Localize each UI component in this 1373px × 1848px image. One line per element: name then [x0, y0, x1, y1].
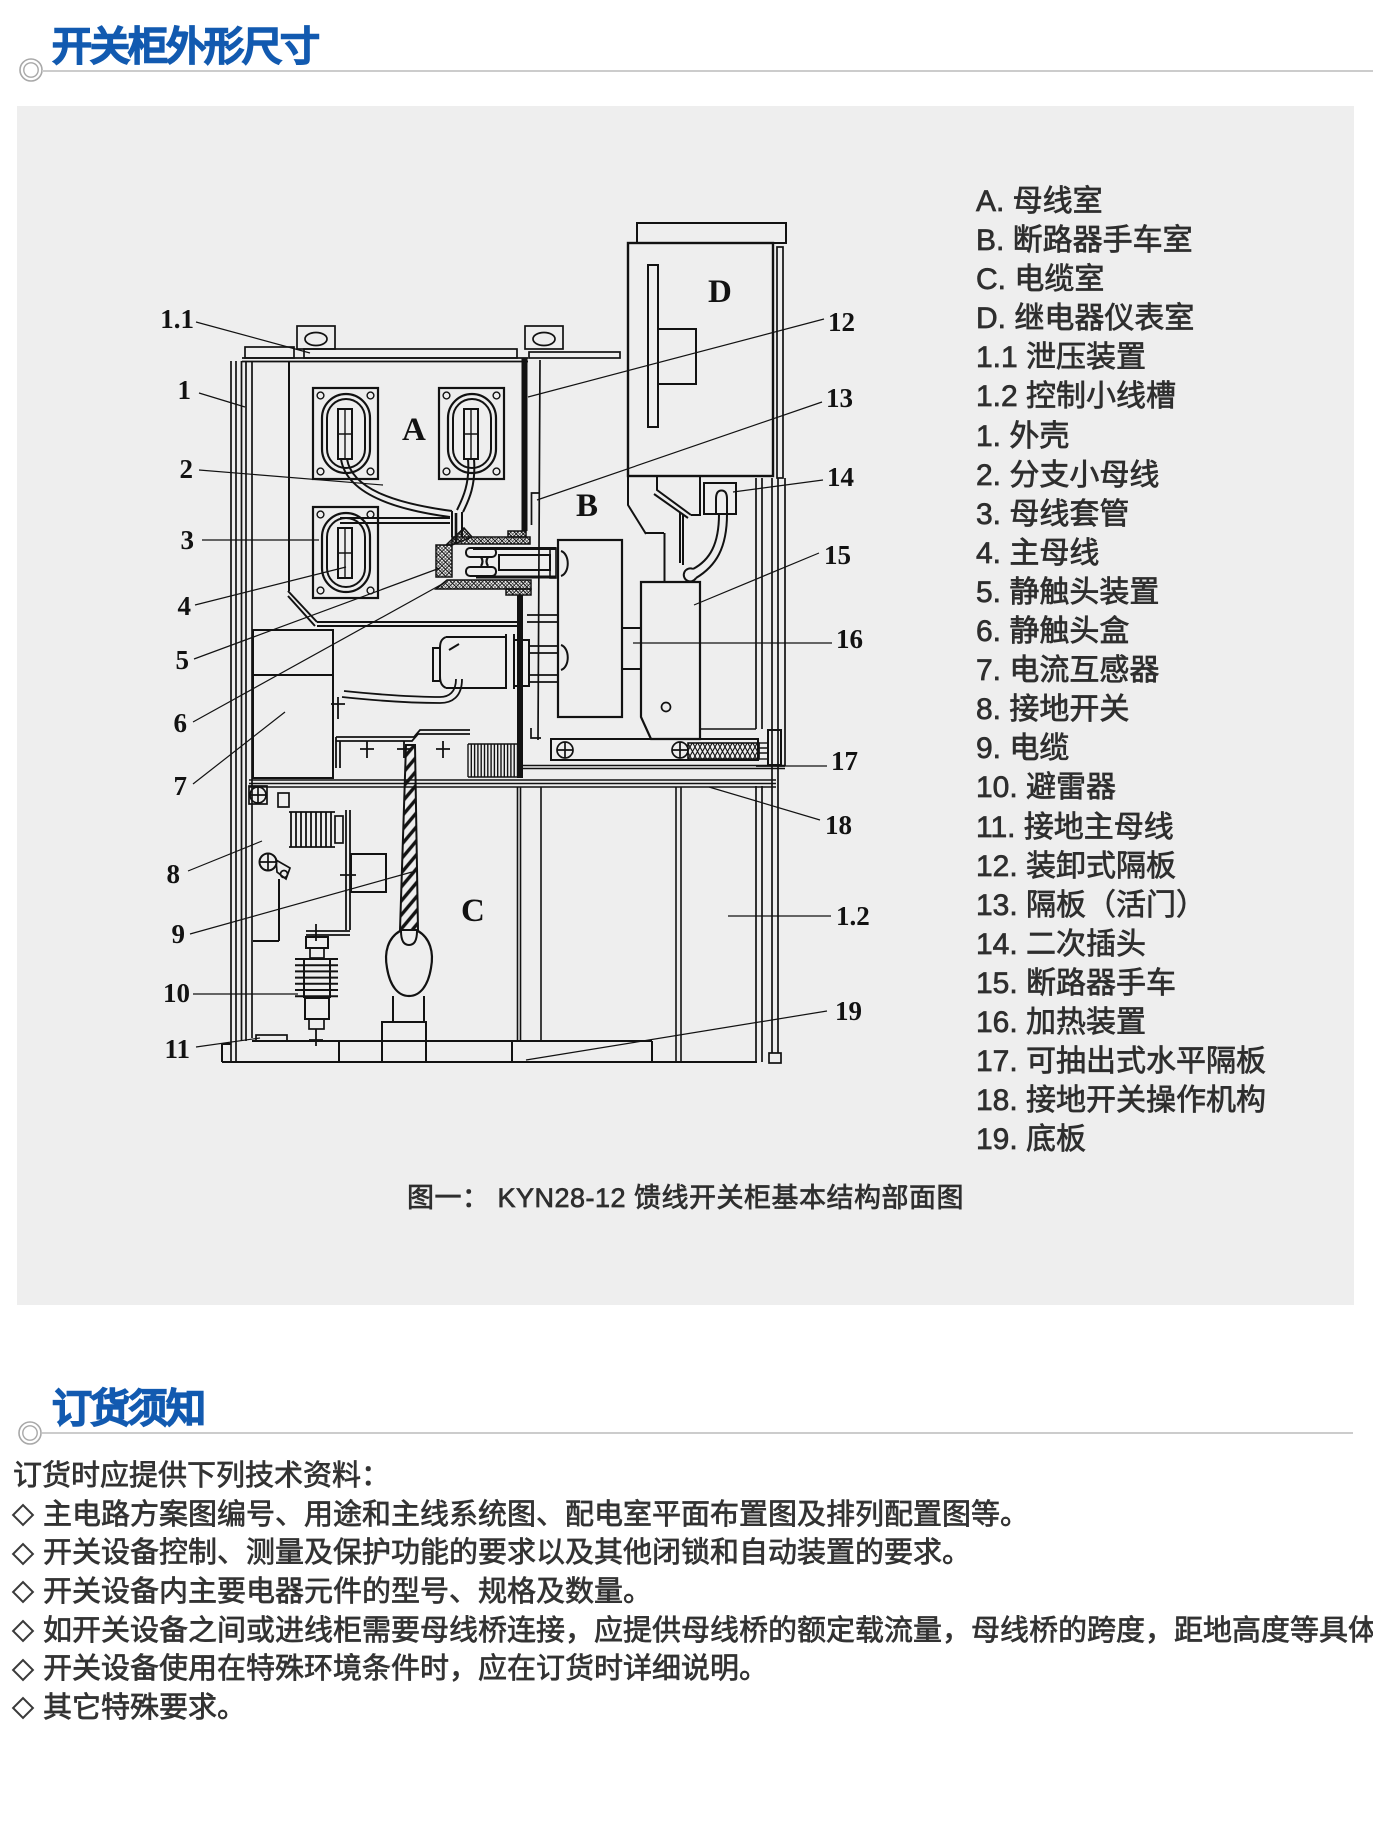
svg-text:1.1: 1.1 — [160, 304, 194, 334]
svg-text:6: 6 — [174, 708, 188, 738]
svg-text:13: 13 — [826, 383, 853, 413]
svg-text:18: 18 — [825, 810, 852, 840]
svg-text:12: 12 — [828, 307, 855, 337]
svg-text:3: 3 — [181, 525, 195, 555]
svg-text:D: D — [708, 274, 732, 310]
svg-text:14: 14 — [827, 462, 854, 492]
svg-text:19: 19 — [835, 996, 862, 1026]
svg-text:9: 9 — [172, 919, 186, 949]
svg-text:1.2: 1.2 — [836, 901, 870, 931]
svg-text:10: 10 — [163, 978, 190, 1008]
svg-text:4: 4 — [178, 591, 192, 621]
svg-text:5: 5 — [176, 645, 190, 675]
svg-text:8: 8 — [167, 859, 181, 889]
svg-text:17: 17 — [831, 746, 858, 776]
svg-text:C: C — [461, 893, 485, 929]
svg-text:A: A — [402, 412, 426, 448]
svg-text:11: 11 — [164, 1034, 190, 1064]
svg-text:16: 16 — [836, 624, 863, 654]
svg-text:7: 7 — [174, 771, 188, 801]
svg-text:1: 1 — [178, 375, 192, 405]
svg-text:15: 15 — [824, 540, 851, 570]
svg-text:2: 2 — [180, 454, 194, 484]
svg-text:B: B — [576, 488, 598, 524]
